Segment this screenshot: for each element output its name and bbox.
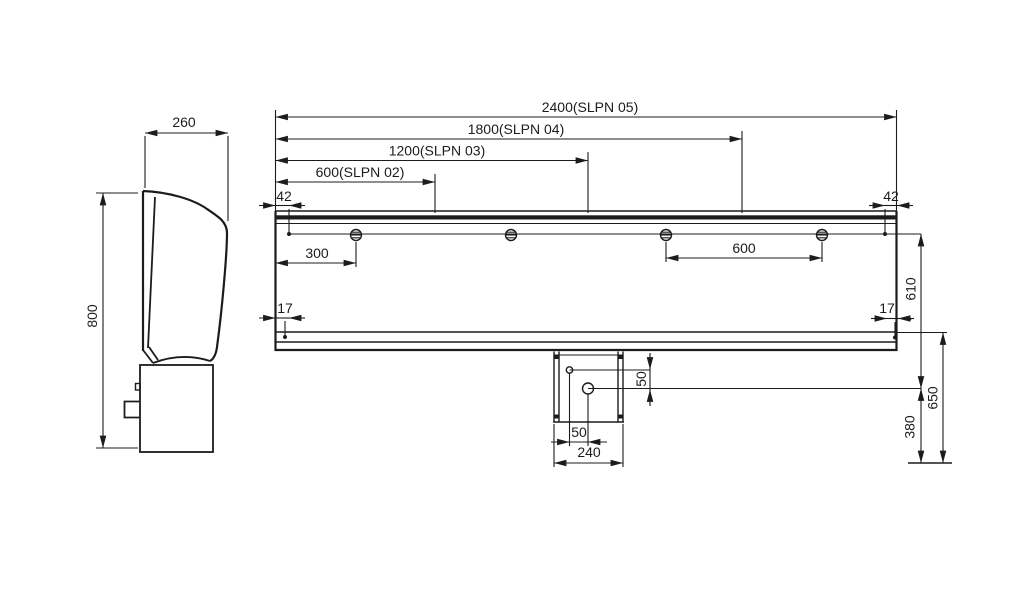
dim-50-vertical: 50 [633,353,650,406]
drain-box [553,352,921,423]
dim-1800-slpn04-label: 1800(SLPN 04) [468,121,565,137]
dim-17-left-label: 17 [277,300,293,316]
dim-600-slpn02: 600(SLPN 02) [276,164,436,182]
dim-1800-slpn04: 1800(SLPN 04) [276,121,743,139]
mounting-hole-1 [351,230,362,241]
mounting-hole-3 [661,230,672,241]
dim-300-label: 300 [305,245,329,261]
dim-600-spacing-label: 600 [732,240,756,256]
dim-260-label: 260 [172,114,196,130]
dim-50-vertical-label: 50 [633,371,649,387]
technical-drawing-page: 260 800 [0,0,1024,601]
dim-600-spacing: 600 [666,240,822,262]
dim-650-label: 650 [925,386,941,410]
dim-42-right-label: 42 [883,188,899,204]
dim-380: 380 [902,389,922,464]
dim-610: 610 [903,234,922,389]
front-view-body [275,211,947,351]
dim-17-right-label: 17 [879,300,895,316]
mounting-hole-4 [817,230,828,241]
mounting-hole-2 [506,230,517,241]
dim-2400-slpn05-label: 2400(SLPN 05) [542,99,639,115]
dim-17-right: 17 [871,300,914,336]
technical-drawing: 260 800 [0,0,1024,601]
dim-1200-slpn03: 1200(SLPN 03) [276,143,589,161]
dim-side-height: 800 [84,193,138,448]
dim-380-label: 380 [902,415,918,439]
dim-50-horizontal-label: 50 [571,424,587,440]
dim-side-depth: 260 [145,114,228,221]
dim-610-label: 610 [903,277,919,301]
dim-650: 650 [925,333,944,464]
dim-1200-slpn03-label: 1200(SLPN 03) [389,143,486,159]
dim-42-left-label: 42 [276,188,292,204]
dim-2400-slpn05: 2400(SLPN 05) [276,99,897,117]
dim-17-left: 17 [259,300,305,336]
mounting-holes [351,230,828,241]
dim-240-label: 240 [577,444,601,460]
length-dimensions: 2400(SLPN 05) 1800(SLPN 04) 1200(SLPN 03… [276,99,897,213]
dim-800-label: 800 [84,304,100,328]
dim-600-slpn02-label: 600(SLPN 02) [316,164,405,180]
side-view: 260 800 [84,114,228,452]
dim-300: 300 [276,242,357,267]
